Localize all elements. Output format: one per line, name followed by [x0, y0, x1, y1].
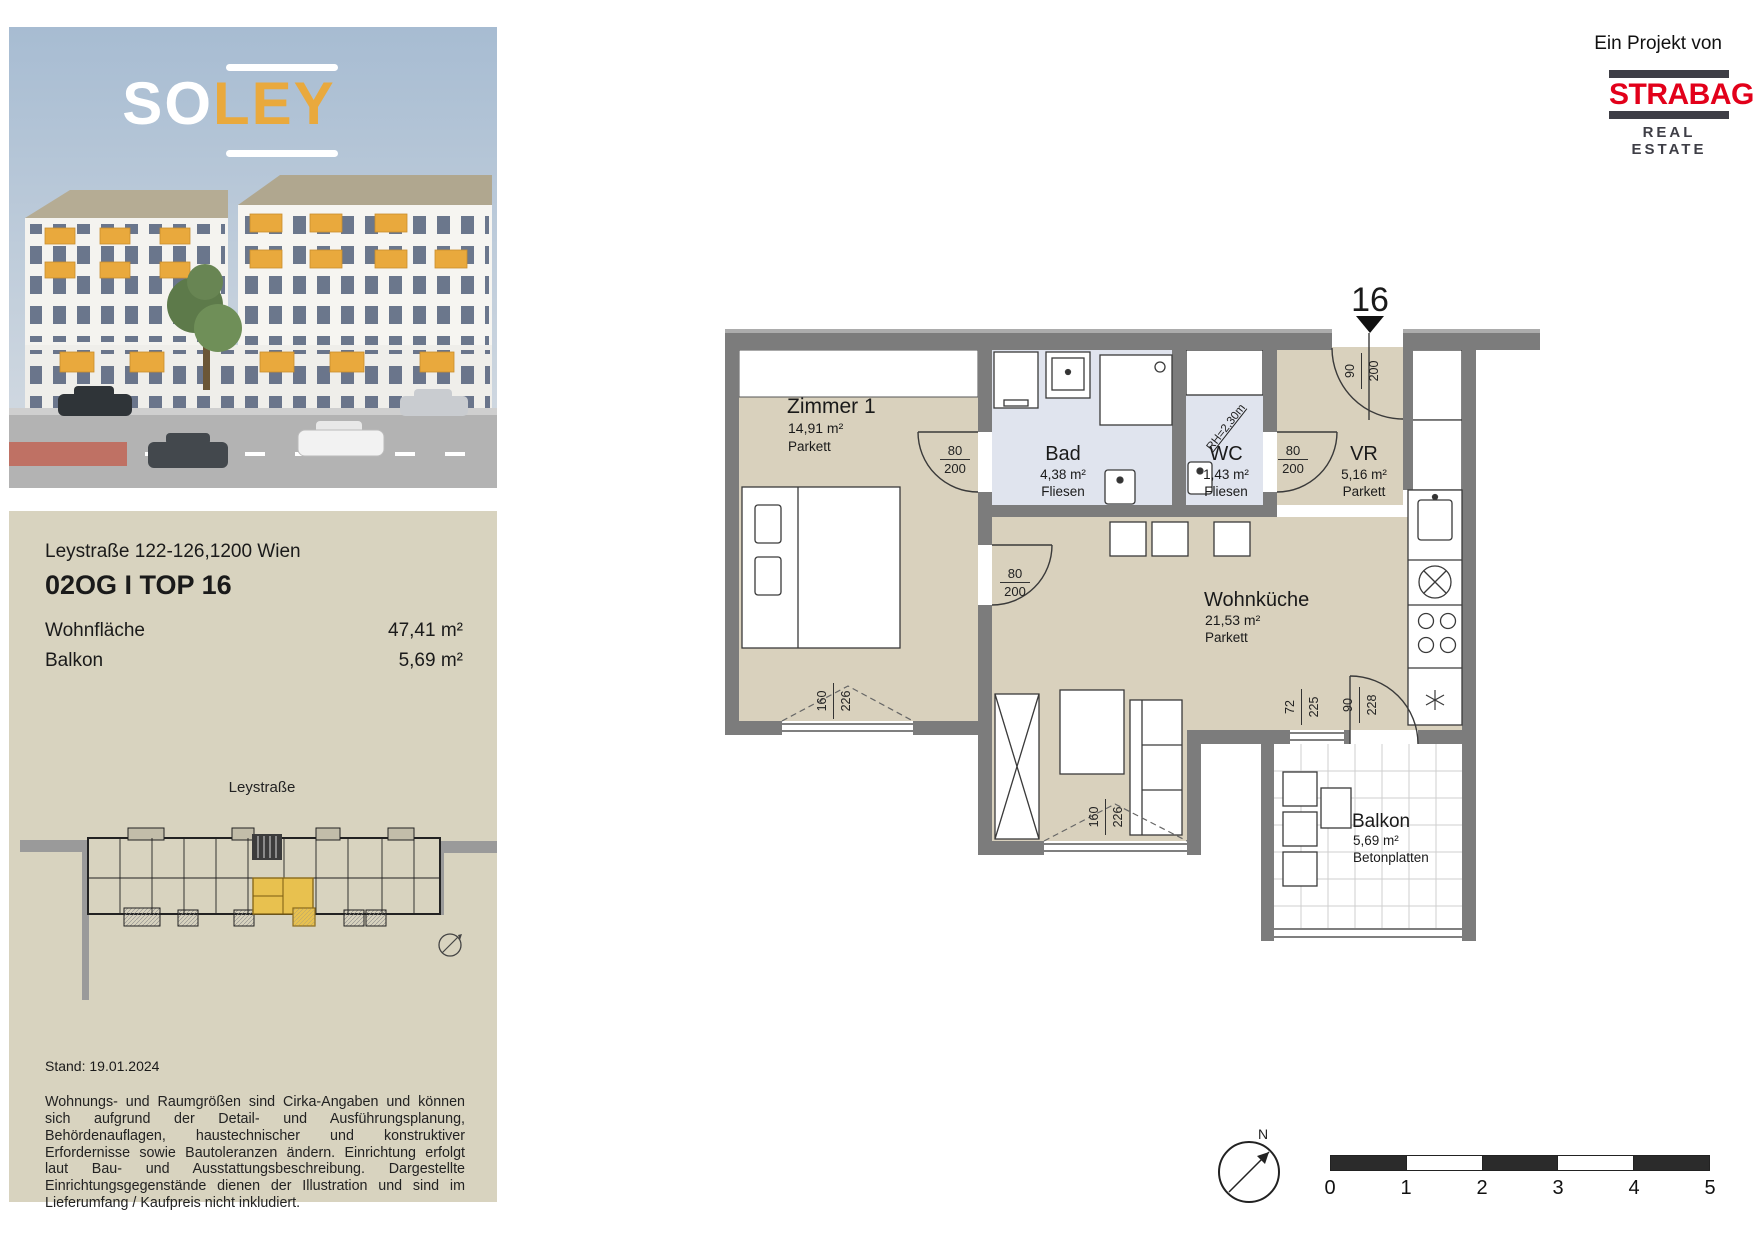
- room-name-wc: WC: [1181, 443, 1271, 466]
- room-area-bad: 4,38 m²: [1018, 467, 1108, 482]
- scale-tick-1: 1: [1391, 1177, 1421, 1200]
- scale-tick-4: 4: [1619, 1177, 1649, 1200]
- dim-balcony-door: 90 228: [1340, 685, 1379, 725]
- sideboard: [1152, 522, 1188, 556]
- dim-door-wc: 80 200: [1275, 443, 1311, 476]
- dim-door-zimmer-bad: 80 200: [937, 443, 973, 476]
- sofa: [1130, 700, 1182, 835]
- room-name-bad: Bad: [1018, 443, 1108, 466]
- room-floor-wc: Fliesen: [1181, 484, 1271, 499]
- dim-balcony-window: 72 225: [1282, 687, 1321, 727]
- room-area-zimmer1: 14,91 m²: [788, 420, 843, 436]
- scale-tick-5: 5: [1695, 1177, 1725, 1200]
- stair-core: [252, 834, 282, 860]
- north-label: N: [1258, 1126, 1268, 1142]
- dim-window-zimmer: 160 226: [814, 681, 853, 721]
- bath-toilet: [1105, 470, 1135, 504]
- scale-tick-2: 2: [1467, 1177, 1497, 1200]
- expose-sheet: SOLEY Ein Projekt von STRABAG REAL ESTAT…: [0, 0, 1755, 1240]
- room-area-wohnkueche: 21,53 m²: [1205, 612, 1260, 628]
- room-name-balkon: Balkon: [1352, 811, 1410, 833]
- room-name-wohnkueche: Wohnküche: [1204, 589, 1309, 612]
- room-floor-zimmer1: Parkett: [788, 439, 831, 454]
- kitchen-sink: [1418, 500, 1452, 540]
- room-floor-bad: Fliesen: [1018, 484, 1108, 499]
- dim-entrance-door: 90 200: [1342, 351, 1381, 391]
- unit-number: 16: [1340, 281, 1400, 320]
- dining-table: [1060, 690, 1124, 774]
- room-name-vr: VR: [1320, 443, 1408, 466]
- site-minimap: [20, 828, 497, 1000]
- sideboard: [1110, 522, 1146, 556]
- room-floor-vr: Parkett: [1320, 484, 1408, 499]
- sideboard: [1214, 522, 1250, 556]
- balcony-table: [1321, 788, 1351, 828]
- north-arrow: [1219, 1142, 1279, 1202]
- minimap-north-icon: [439, 934, 462, 956]
- dim-window-wohnkueche: 160 226: [1086, 797, 1125, 837]
- cooktop-burner: [1419, 614, 1434, 629]
- room-name-zimmer1: Zimmer 1: [787, 395, 876, 419]
- balcony-chair: [1283, 812, 1317, 846]
- room-floor-balkon: Betonplatten: [1353, 850, 1429, 865]
- balcony-chair: [1283, 852, 1317, 886]
- scale-tick-0: 0: [1315, 1177, 1345, 1200]
- dim-door-wohnkueche: 80 200: [997, 566, 1033, 599]
- scale-tick-3: 3: [1543, 1177, 1573, 1200]
- plan-graphics: [0, 0, 1755, 1240]
- room-area-balkon: 5,69 m²: [1353, 833, 1399, 848]
- room-area-vr: 5,16 m²: [1320, 467, 1408, 482]
- room-floor-wohnkueche: Parkett: [1205, 630, 1248, 645]
- balcony-chair: [1283, 772, 1317, 806]
- scale-bar: [1330, 1155, 1710, 1171]
- room-area-wc: 1,43 m²: [1181, 467, 1271, 482]
- entrance-marker-icon: [1356, 316, 1384, 333]
